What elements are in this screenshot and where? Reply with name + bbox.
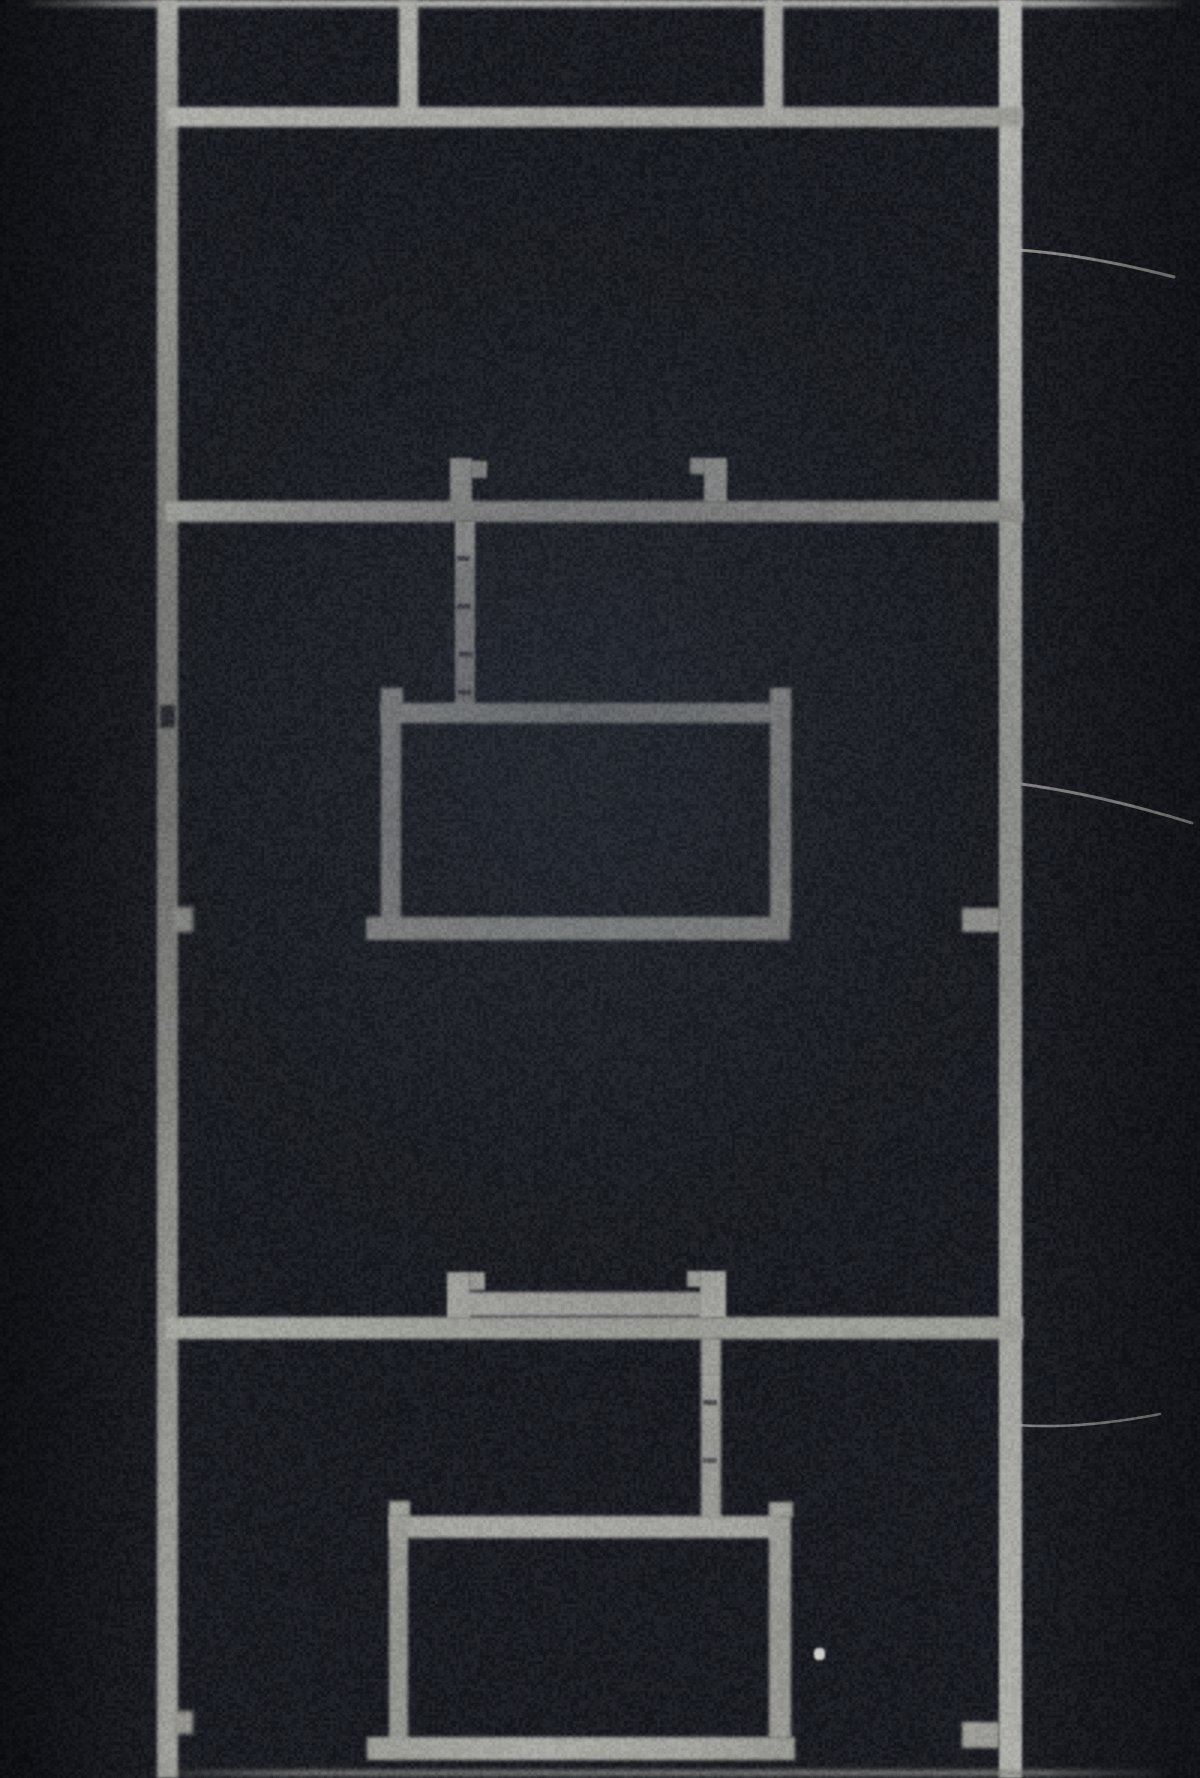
- left-edge-shadow: [0, 0, 165, 1778]
- frame2-stub-left: [389, 1501, 410, 1517]
- shelf-bar-3: [166, 1317, 1023, 1339]
- right-rail-stub-bottom: [962, 1722, 999, 1748]
- left-rail-nub-bottom: [174, 1711, 193, 1734]
- frame1-post-left: [381, 703, 401, 920]
- frame1-bottom-bar: [366, 917, 790, 940]
- shelf-bar-2: [166, 501, 1023, 522]
- left-rail-dark-notch: [160, 705, 175, 728]
- rod-joint-mark: [457, 604, 470, 609]
- right-rail: [999, 0, 1022, 1778]
- wire-upper: [1019, 250, 1174, 277]
- rod-joint-mark: [458, 690, 471, 695]
- frame2-bottom-bar: [367, 1737, 795, 1760]
- bracket-tab-right-ear: [687, 1271, 701, 1287]
- rod-joint-mark: [703, 1400, 717, 1405]
- left-rail: [157, 0, 178, 1778]
- bracket-cross-bar: [466, 1292, 702, 1316]
- right-edge-shadow: [1020, 0, 1200, 1778]
- hook-tab-b-body: [704, 458, 727, 502]
- rod-joint-mark: [703, 1458, 717, 1463]
- frame2-post-right: [769, 1516, 791, 1738]
- hanging-rod-lower: [701, 1338, 721, 1518]
- wire-middle: [1021, 784, 1192, 823]
- left-rail-nub-mid: [173, 907, 193, 932]
- bottom-edge-bar: [150, 1770, 1160, 1776]
- frame2-top-bar: [389, 1516, 780, 1538]
- rod-joint-mark: [457, 556, 470, 561]
- hook-tab-b-ear: [690, 458, 705, 474]
- bracket-tab-left-ear: [469, 1272, 485, 1290]
- rod-joint-mark: [459, 652, 472, 657]
- frame1-post-right: [770, 703, 791, 920]
- dust-speck: [814, 1648, 825, 1660]
- hanging-rod-upper: [455, 521, 475, 707]
- hanger-drop-right: [764, 0, 783, 114]
- frame1-top-bar: [381, 703, 782, 723]
- wire-lower: [1004, 1414, 1160, 1426]
- hanger-drop-left: [399, 0, 418, 114]
- frame2-post-left: [389, 1516, 408, 1740]
- bracket-tab-right-body: [700, 1271, 726, 1318]
- sculpture-photograph: [0, 0, 1200, 1778]
- frame2-stub-right: [769, 1502, 793, 1517]
- right-rail-stub-mid: [962, 908, 1000, 932]
- shelf-bar-1: [166, 107, 1023, 127]
- hook-tab-a-body: [450, 458, 472, 505]
- hook-tab-a-ear: [471, 461, 487, 478]
